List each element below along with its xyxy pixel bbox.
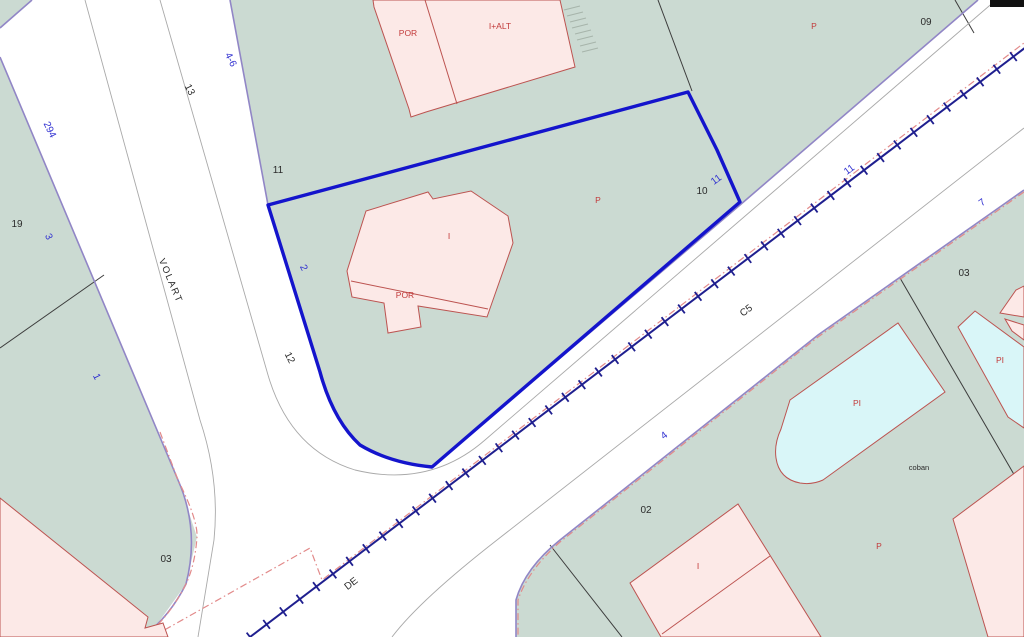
label-p-southeast: P [876, 541, 882, 551]
railway-tick [828, 191, 835, 200]
map-tooltip-fragment [990, 0, 1024, 7]
railway-tick [761, 241, 768, 250]
railway-tick [280, 607, 287, 616]
label-number-4-6: 4-6 [222, 51, 238, 69]
label-number-4: 4 [659, 430, 670, 442]
label-parcel-03-east: 03 [958, 268, 970, 279]
railway-tick [296, 595, 303, 604]
map-viewport[interactable]: 294 19 3 1 13 4-6 VOLART 11 2 12 03 POR … [0, 0, 1024, 637]
railway-tick [313, 582, 320, 591]
railway-tick [562, 393, 569, 402]
label-parcel-10: 10 [696, 186, 708, 197]
railway-tick [545, 406, 552, 415]
railway-tick [512, 431, 519, 440]
label-parcel-09: 09 [920, 17, 932, 28]
label-parcel-11: 11 [273, 165, 284, 176]
railway-tick [678, 305, 685, 314]
railway-tick [662, 317, 669, 326]
railway-tick [977, 77, 984, 86]
railway-tick [844, 178, 851, 187]
label-street-code-c5: C5 [738, 303, 755, 320]
railway-tick [794, 216, 801, 225]
railway-tick [944, 103, 951, 112]
label-number-11-road-b: 11 [842, 162, 857, 177]
label-parcel-02: 02 [640, 505, 652, 516]
railway-tick [1010, 52, 1017, 61]
street-name-de: DE [343, 575, 361, 592]
building-use-i-alt: I+ALT [489, 21, 511, 31]
railway-tick [778, 229, 785, 238]
railway-tick [877, 153, 884, 162]
railway-tick [911, 128, 918, 137]
railway-tick [728, 267, 735, 276]
label-parcel-03-west: 03 [160, 554, 172, 565]
label-coban: coban [909, 463, 929, 472]
label-p-selected-parcel: P [595, 195, 601, 205]
railway-tick [396, 519, 403, 528]
railway-tick [993, 65, 1000, 74]
building-use-i-south: I [697, 561, 699, 571]
railway-tick [263, 620, 270, 629]
railway-tick [695, 292, 702, 301]
label-parcel-294: 294 [41, 120, 58, 140]
label-number-12: 12 [282, 350, 297, 365]
building-use-por-center: POR [396, 290, 414, 300]
label-parcel-19: 19 [11, 219, 23, 230]
railway-tick [446, 481, 453, 490]
map-canvas[interactable]: 294 19 3 1 13 4-6 VOLART 11 2 12 03 POR … [0, 0, 1024, 637]
railway-tick [330, 570, 337, 579]
railway-tick [927, 115, 934, 124]
railway-tick [861, 166, 868, 175]
railway-tick [745, 254, 752, 263]
railway-tick [711, 279, 718, 288]
label-p-northeast: P [811, 21, 817, 31]
railway-tick [960, 90, 967, 99]
railway-tick [894, 141, 901, 150]
pool-label-pi-east: PI [996, 355, 1004, 365]
railway-tick [595, 368, 602, 377]
building-use-i-center: I [448, 231, 450, 241]
pool-label-pi-large: PI [853, 398, 861, 408]
label-number-7: 7 [977, 197, 988, 209]
railway-tick [811, 204, 818, 213]
building-use-por-north: POR [399, 28, 417, 38]
street-name-volart: VOLART [156, 257, 185, 305]
